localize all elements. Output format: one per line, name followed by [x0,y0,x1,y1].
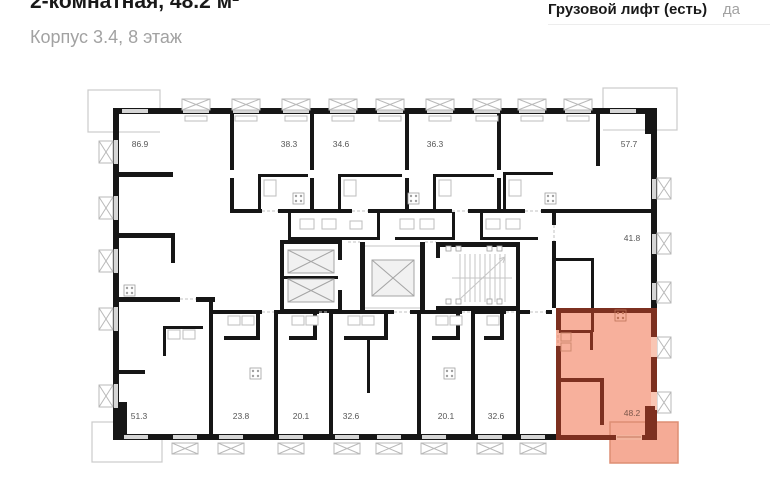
page-subtitle: Корпус 3.4, 8 этаж [30,27,182,48]
floor-plan: 86.938.334.636.357.741.851.323.820.132.6… [0,0,770,500]
unit-area-label: 32.6 [488,411,505,421]
unit-area-label: 32.6 [343,411,360,421]
highlighted-apartment-area [556,308,657,440]
unit-area-label: 41.8 [624,233,641,243]
stove-icon [408,193,419,204]
unit-area-label: 48.2 [624,408,641,418]
ac-units-left [99,141,113,407]
ac-units-right [657,178,671,413]
unit-area-label: 34.6 [333,139,350,149]
stove-icon [545,193,556,204]
vent-boxes-bottom [172,443,546,454]
stove-icon [250,368,261,379]
page-title: 2-комнатная, 48.2 м² [30,0,239,14]
elevator-core-1 [280,240,342,313]
radiators [185,116,589,121]
unit-area-label: 20.1 [438,411,455,421]
unit-area-label: 51.3 [131,411,148,421]
vent-boxes-top [182,99,592,110]
spec-value: да [723,1,740,18]
unit-area-label: 38.3 [281,139,298,149]
spec-label: Грузовой лифт (есть) [548,1,707,18]
unit-area-label: 36.3 [427,139,444,149]
unit-area-label: 86.9 [132,139,149,149]
stove-icon [124,285,135,296]
highlighted-apartment[interactable] [556,308,678,463]
unit-area-label: 57.7 [621,139,638,149]
stove-icon [444,368,455,379]
unit-area-label: 23.8 [233,411,250,421]
unit-area-label: 20.1 [293,411,310,421]
spec-row-freight-elevator: Грузовой лифт (есть) да [548,1,740,18]
stove-icon [293,193,304,204]
divider [548,24,770,25]
highlighted-apartment-balcony [610,422,678,463]
apartment-page: 86.938.334.636.357.741.851.323.820.132.6… [0,0,770,500]
